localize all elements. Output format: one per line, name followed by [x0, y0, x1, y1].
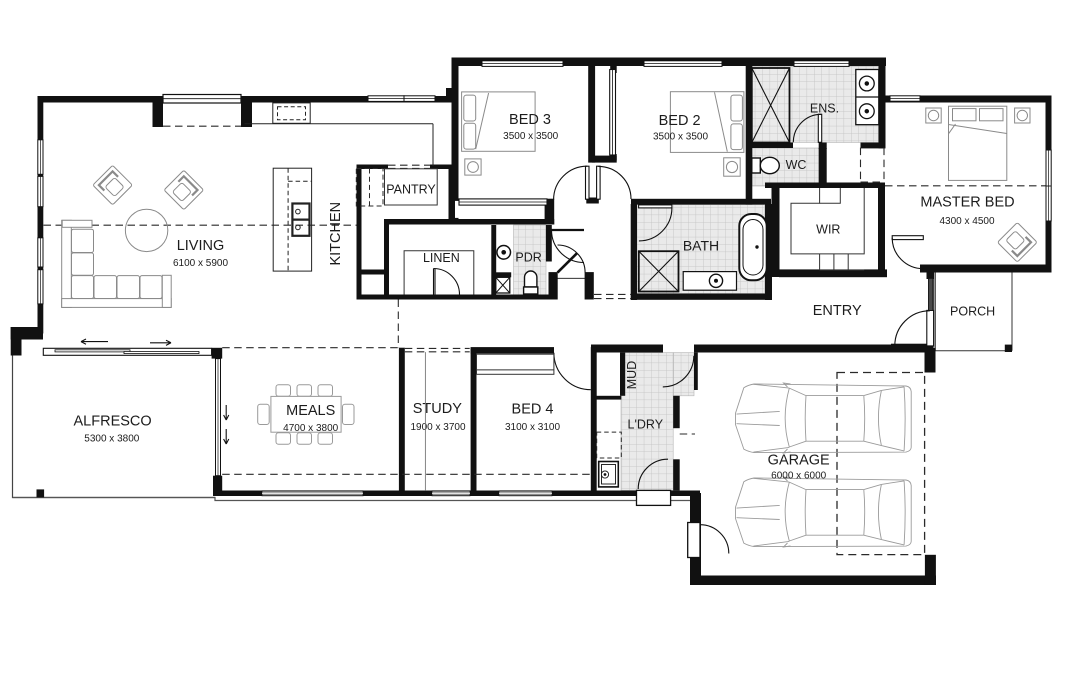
svg-text:WIR: WIR [816, 223, 840, 237]
svg-text:STUDY: STUDY [413, 401, 462, 417]
svg-text:MUD: MUD [625, 361, 639, 389]
svg-text:PANTRY: PANTRY [386, 183, 436, 197]
svg-text:LINEN: LINEN [423, 251, 460, 265]
svg-text:WC: WC [786, 158, 807, 172]
svg-text:PDR: PDR [515, 251, 541, 265]
svg-text:GARAGE: GARAGE [768, 453, 830, 469]
svg-text:MASTER BED: MASTER BED [920, 195, 1014, 211]
svg-text:3500 x 3500: 3500 x 3500 [503, 131, 558, 142]
svg-text:6000 x 6000: 6000 x 6000 [771, 471, 826, 482]
svg-text:ALFRESCO: ALFRESCO [74, 414, 152, 430]
svg-text:1900 x 3700: 1900 x 3700 [410, 422, 465, 433]
svg-text:PORCH: PORCH [950, 305, 995, 319]
svg-text:5300 x 3800: 5300 x 3800 [84, 434, 139, 445]
svg-text:BED 3: BED 3 [509, 112, 551, 128]
svg-text:BATH: BATH [683, 238, 719, 254]
svg-text:ENS.: ENS. [810, 102, 839, 116]
svg-text:4700 x 3800: 4700 x 3800 [283, 423, 338, 434]
svg-text:4300 x 4500: 4300 x 4500 [939, 216, 994, 227]
svg-text:LIVING: LIVING [177, 238, 225, 254]
svg-text:L'DRY: L'DRY [628, 418, 664, 432]
svg-text:6100 x 5900: 6100 x 5900 [173, 258, 228, 269]
svg-text:3100 x 3100: 3100 x 3100 [505, 422, 560, 433]
svg-text:KITCHEN: KITCHEN [328, 202, 344, 266]
svg-text:BED 4: BED 4 [512, 402, 554, 418]
svg-text:3500 x 3500: 3500 x 3500 [653, 132, 708, 143]
svg-text:BED 2: BED 2 [659, 113, 701, 129]
svg-text:ENTRY: ENTRY [813, 303, 862, 319]
svg-text:MEALS: MEALS [286, 403, 335, 419]
